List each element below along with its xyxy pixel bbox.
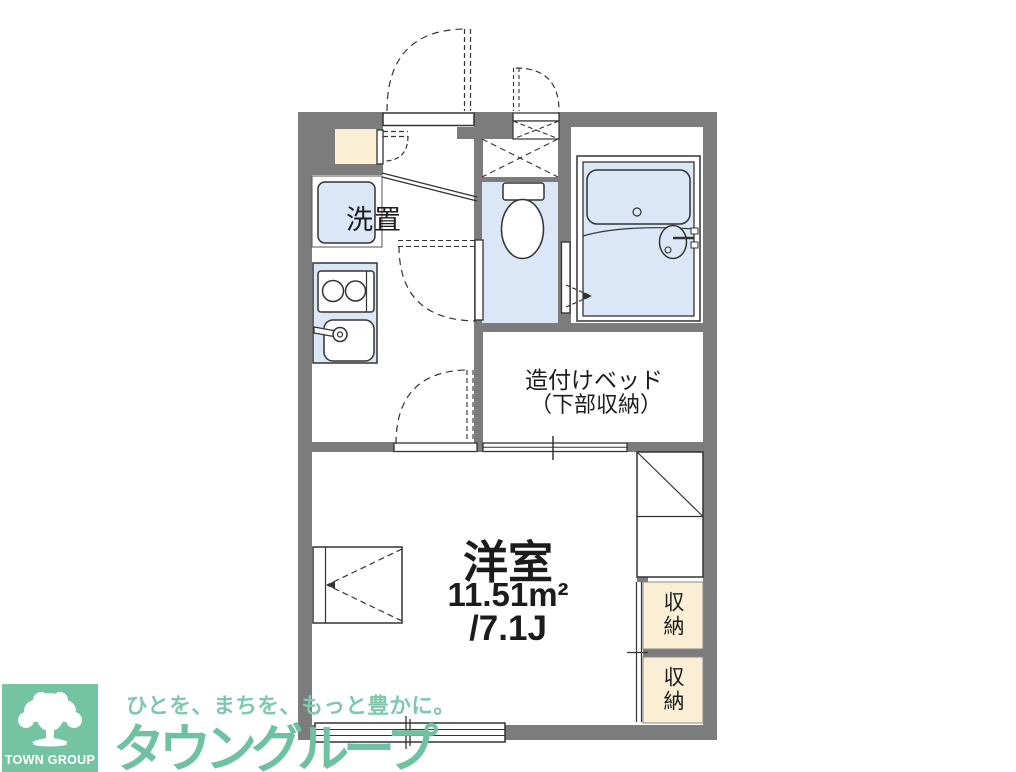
shaft-cross-large-icon [482,139,558,177]
utility-door-icon [513,68,559,121]
toilet-door-icon [398,240,483,321]
toilet-icon [502,183,545,259]
storage-top-label: 収納 [657,591,687,639]
entrance-door-icon [383,29,474,126]
agari-kamachi-line [382,173,477,201]
shoe-cabinet-door [377,130,383,164]
laundry-label: 洗置 [346,198,402,237]
entrance-step [335,129,377,164]
floorplan-drawing [0,0,1016,772]
hall-door-icon [394,370,477,452]
main-room-area-tatami: /7.1J [469,609,547,649]
bathroom-unit-icon [577,156,700,321]
shoe-cabinet-swing-icon [383,132,408,162]
storage-bottom-label: 収納 [657,666,687,714]
town-group-tree-icon [2,684,98,750]
logo-brand-name: タウングループ [113,707,432,772]
town-group-logo: TOWN GROUP [2,684,98,772]
floorplan-canvas: 洗置 造付けベッド （下部収納） 洋室 11.51m² /7.1J 収納 収納 … [0,0,1016,772]
town-group-label: TOWN GROUP [2,753,98,767]
bay-window-icon [313,547,402,623]
kitchen-unit-icon [313,263,377,363]
stove-icon [318,271,374,312]
under-bed-storage-label: （下部収納） [530,387,662,419]
bed-opening-icon [483,436,627,460]
closet-icon [637,452,703,577]
